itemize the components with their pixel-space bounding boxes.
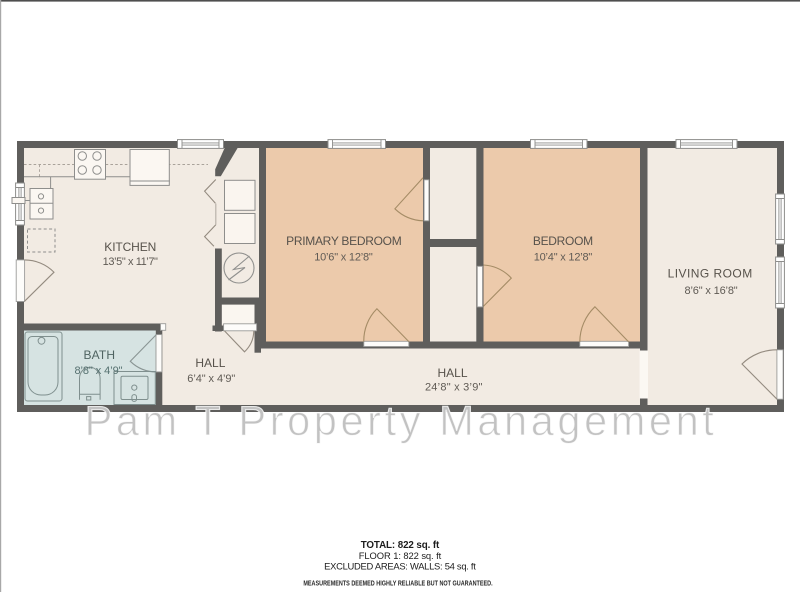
svg-text:10’6" x 12’8": 10’6" x 12’8" xyxy=(314,252,373,264)
svg-text:BATH: BATH xyxy=(84,348,116,362)
svg-text:8’6" x 16’8": 8’6" x 16’8" xyxy=(685,285,738,297)
svg-text:LIVING ROOM: LIVING ROOM xyxy=(668,267,753,281)
svg-text:BEDROOM: BEDROOM xyxy=(533,234,593,248)
svg-text:MEASUREMENTS DEEMED HIGHLY REL: MEASUREMENTS DEEMED HIGHLY RELIABLE BUT … xyxy=(303,579,492,588)
svg-text:PRIMARY BEDROOM: PRIMARY BEDROOM xyxy=(286,234,402,248)
svg-text:HALL: HALL xyxy=(438,366,468,380)
svg-text:EXCLUDED AREAS: WALLS: 54 sq.: EXCLUDED AREAS: WALLS: 54 sq. ft xyxy=(324,561,476,572)
svg-text:24’8" x 3’9": 24’8" x 3’9" xyxy=(425,382,483,394)
svg-text:FLOOR 1: 822 sq. ft: FLOOR 1: 822 sq. ft xyxy=(359,550,442,561)
svg-text:6’4" x 4’9": 6’4" x 4’9" xyxy=(187,373,235,385)
svg-text:KITCHEN: KITCHEN xyxy=(104,240,156,254)
svg-text:10’4" x 12’8": 10’4" x 12’8" xyxy=(534,252,593,264)
svg-text:13’5" x 11’7": 13’5" x 11’7" xyxy=(103,256,158,268)
svg-text:Pam T Property Management: Pam T Property Management xyxy=(85,397,718,444)
svg-text:8’8" x 4’9": 8’8" x 4’9" xyxy=(74,365,122,377)
svg-text:HALL: HALL xyxy=(195,356,225,370)
